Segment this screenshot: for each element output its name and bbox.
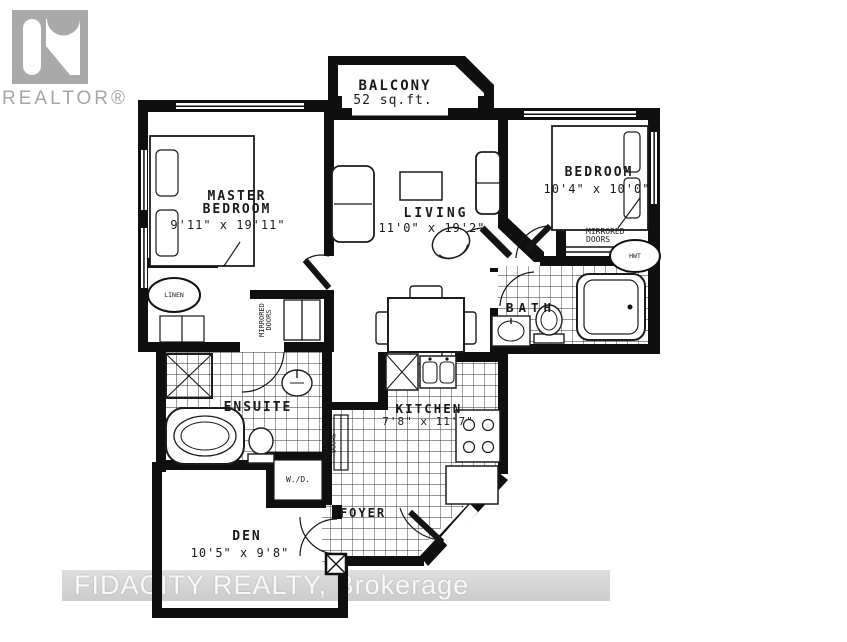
master-bedroom-label: MASTER BEDROOM — [190, 190, 285, 216]
foyer-mirrored-doors-label: MIRRORED DOORS — [324, 421, 337, 465]
bath-label: BATH — [506, 300, 556, 315]
ensuite-label: ENSUITE — [224, 400, 293, 415]
bedroom-mirrored-doors-label: MIRRORED DOORS — [586, 228, 642, 244]
living-label: LIVING — [404, 206, 469, 221]
master-bedroom-dims: 9'11" x 19'11" — [170, 218, 285, 232]
balcony-label: BALCONY — [358, 78, 431, 94]
bedroom-dims: 10'4" x 10'0" — [544, 182, 651, 196]
realtor-logo-icon — [12, 10, 88, 84]
entry-column — [326, 554, 346, 574]
master-mirrored-doors-label: MIRRORED DOORS — [259, 298, 273, 342]
balcony-area-label: 52 sq.ft. — [353, 93, 432, 108]
dining-set — [376, 286, 476, 364]
linen-label: LINEN — [164, 291, 184, 299]
den-dims: 10'5" x 9'8" — [191, 546, 290, 560]
hwt-label: HWT — [629, 252, 641, 260]
bedroom-label: BEDROOM — [565, 165, 634, 180]
foyer-label: FOYER — [340, 506, 386, 520]
kitchen-label: KITCHEN — [396, 401, 463, 416]
realtor-logo-text: REALTOR® — [2, 88, 128, 110]
den-label: DEN — [232, 529, 261, 544]
living-dims: 11'0" x 19'2" — [379, 221, 486, 235]
kitchen-dims: 7'8" x 11'7" — [382, 415, 473, 428]
floorplan-page: FIDACITY REALTY, Brokerage — [0, 0, 847, 642]
washer-dryer-label: W./D. — [286, 475, 310, 484]
